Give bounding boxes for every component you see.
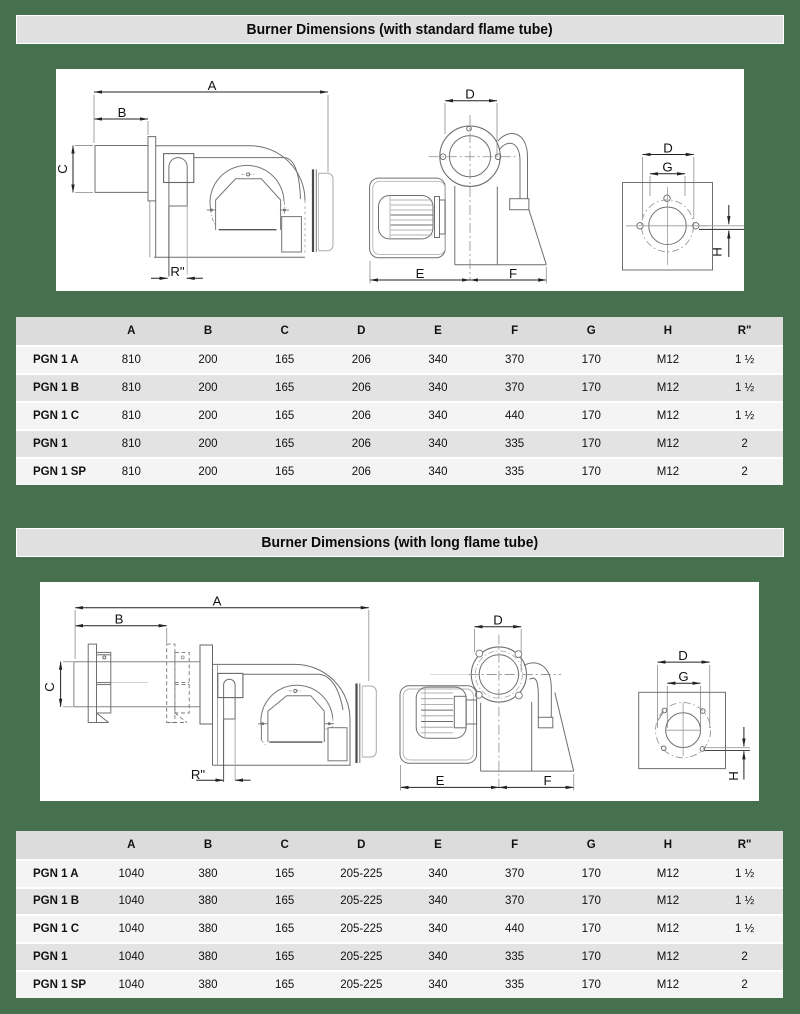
svg-text:D: D <box>663 140 673 155</box>
svg-text:R": R" <box>191 767 206 782</box>
svg-text:A: A <box>213 594 222 609</box>
svg-text:E: E <box>416 266 425 281</box>
svg-text:C: C <box>56 164 70 174</box>
svg-text:G: G <box>678 669 688 684</box>
svg-text:E: E <box>436 773 445 788</box>
svg-text:G: G <box>662 160 672 175</box>
svg-text:F: F <box>509 266 517 281</box>
svg-text:B: B <box>115 612 124 627</box>
svg-text:F: F <box>543 773 551 788</box>
svg-text:H: H <box>710 247 725 257</box>
svg-text:A: A <box>208 78 217 93</box>
svg-text:R": R" <box>170 264 185 279</box>
svg-text:H: H <box>726 771 741 781</box>
svg-text:D: D <box>465 87 475 102</box>
svg-text:C: C <box>42 682 57 692</box>
svg-text:B: B <box>118 105 127 120</box>
svg-text:D: D <box>678 648 688 663</box>
svg-text:D: D <box>493 613 503 628</box>
